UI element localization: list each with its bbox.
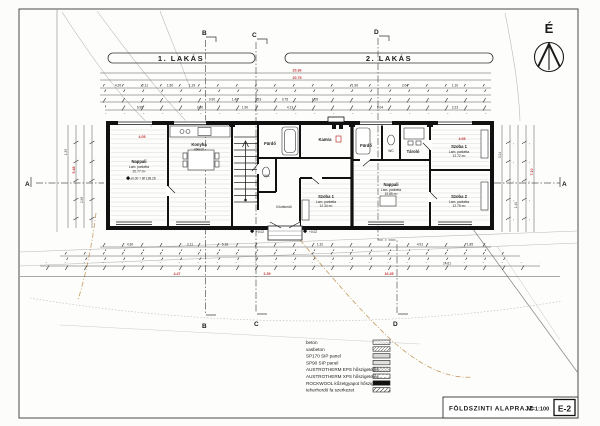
dim-label: 2.98 xyxy=(80,197,84,203)
dim-label: 1.10 xyxy=(452,84,458,88)
legend-label: AUSTROTHERM XPS hőszigetelés xyxy=(306,374,379,379)
dim-label: 4.91 xyxy=(417,243,423,247)
dim-label: 0.90 xyxy=(209,98,215,102)
room-floor: Lam. parketta xyxy=(129,165,149,169)
section-marker-a-right: A xyxy=(562,181,567,188)
dim-label: 4.20 xyxy=(115,84,121,88)
room-name: Szoba 1 xyxy=(451,144,467,149)
dim-label: 1.40 xyxy=(514,202,518,208)
room-sub: étkező xyxy=(194,148,204,152)
building-plan: Nappali Lam. parketta 20.77 m² ±0.00 = B… xyxy=(108,117,492,240)
svg-text:±0.00 = Bf 138.26: ±0.00 = Bf 138.26 xyxy=(130,177,155,181)
drawing-sheet: É 1. LAKÁS 2. LAKÁS B C D B C D A A xyxy=(0,0,600,426)
dim-label: 1.85 xyxy=(467,243,473,247)
dim-label: 2.11 xyxy=(142,84,148,88)
dim-label: 1.32 xyxy=(317,243,323,247)
dim-label: 1.19 xyxy=(189,84,195,88)
north-label: É xyxy=(545,21,554,36)
drawing-scale: M=1:100 xyxy=(527,407,549,413)
dim-label: 7.10 xyxy=(530,169,534,176)
section-marker-b-top: B xyxy=(202,30,207,37)
svg-text:+0.02: +0.02 xyxy=(309,230,317,234)
dim-label: 4.47 xyxy=(174,272,181,276)
dim-label: 4.30 xyxy=(127,243,133,247)
room-floor: Lam. parketta xyxy=(316,200,336,204)
room-name: Közlekedő xyxy=(276,205,292,209)
legend-label: SP170 SIP panel xyxy=(306,354,341,359)
legend-label: AUSTROTHERM EPS hőszigetelés xyxy=(306,367,379,372)
section-marker-c-top: C xyxy=(252,32,257,39)
section-marker-c-bottom: C xyxy=(254,321,259,328)
section-marker-d-top: D xyxy=(374,29,379,36)
room-area: 20.77 m² xyxy=(132,170,146,174)
room-area: 12.34 m² xyxy=(319,204,333,208)
room-name: WC xyxy=(388,149,394,153)
room-area: 12.75 m² xyxy=(452,204,466,208)
dim-label: 16.45 xyxy=(385,272,394,276)
floor-plan-drawing: É 1. LAKÁS 2. LAKÁS B C D B C D A A xyxy=(0,0,600,426)
room-name: Nappali xyxy=(383,182,398,187)
section-marker-a-left: A xyxy=(25,181,30,188)
apartment-1-label: 1. LAKÁS xyxy=(158,54,204,63)
dim-label: 14.61 xyxy=(443,262,451,266)
dim-label: 20.75 xyxy=(293,76,302,80)
stairs xyxy=(234,132,257,205)
dim-label: 4.05 xyxy=(139,135,146,139)
dim-label: 1.90 xyxy=(352,84,358,88)
room-name: WC xyxy=(264,174,270,178)
legend-label: beton xyxy=(306,340,318,345)
room-name: Fürdő xyxy=(360,143,372,148)
room-name: Kamra xyxy=(318,137,332,142)
section-marker-b-bottom: B xyxy=(202,323,207,330)
dim-label: 1.90 xyxy=(242,106,248,110)
room-name: Szoba 2 xyxy=(451,194,467,199)
room-name: Nappali xyxy=(131,159,146,164)
dim-label: 1.50 xyxy=(167,84,173,88)
dim-label: 0.75 xyxy=(282,98,288,102)
dim-label: 20.36 xyxy=(293,69,302,73)
legend-label: SP90 SIP panel xyxy=(306,360,338,365)
level-mark: ±0.00 = Bf 138.26 xyxy=(126,176,156,181)
room-name: Szoba 1 xyxy=(318,194,334,199)
dim-label: 5.18 xyxy=(222,243,228,247)
room-floor: Lam. parketta xyxy=(381,188,401,192)
sheet-number: E-2 xyxy=(558,404,572,414)
svg-text:+0.02: +0.02 xyxy=(256,230,264,234)
dim-label: 1.40 xyxy=(232,98,238,102)
room-area: 12.72 m² xyxy=(452,154,466,158)
drawing-title: FÖLDSZINTI ALAPRAJZ xyxy=(449,404,534,413)
legend-label: vasbeton xyxy=(306,347,325,352)
room-name: Fürdő xyxy=(264,141,276,146)
dim-label: 4.13 xyxy=(287,106,293,110)
title-block: FÖLDSZINTI ALAPRAJZ M=1:100 E-2 xyxy=(443,397,578,418)
dim-label: 2.23 xyxy=(255,98,261,102)
apartment-2-label: 2. LAKÁS xyxy=(366,54,412,63)
dim-label: 1.35 xyxy=(64,149,68,155)
dim-label: 3.24 xyxy=(498,152,502,158)
room-name: Tároló xyxy=(407,149,420,154)
dim-label: 6.95 xyxy=(137,106,143,110)
room-floor: Lam. parketta xyxy=(449,150,469,154)
room-name: Konyha xyxy=(191,142,207,147)
legend-label: teherhordó fa szerkezet xyxy=(306,388,355,393)
dim-label: 4.05 xyxy=(459,137,466,141)
room-area: 19.85 m² xyxy=(384,192,398,196)
room-floor: Lam. parketta xyxy=(449,200,469,204)
dim-label: 1.05 xyxy=(312,98,318,102)
dim-label: 0.90 xyxy=(197,106,203,110)
section-marker-d-bottom: D xyxy=(393,321,398,328)
dim-label: 2.39 xyxy=(264,272,271,276)
dim-label: 2.23 xyxy=(452,106,458,110)
dim-label: 5.48 xyxy=(72,167,76,174)
dim-label: 2.04 xyxy=(402,84,408,88)
dim-label: 8.04 xyxy=(377,106,383,110)
dim-label: 2.11 xyxy=(187,243,193,247)
